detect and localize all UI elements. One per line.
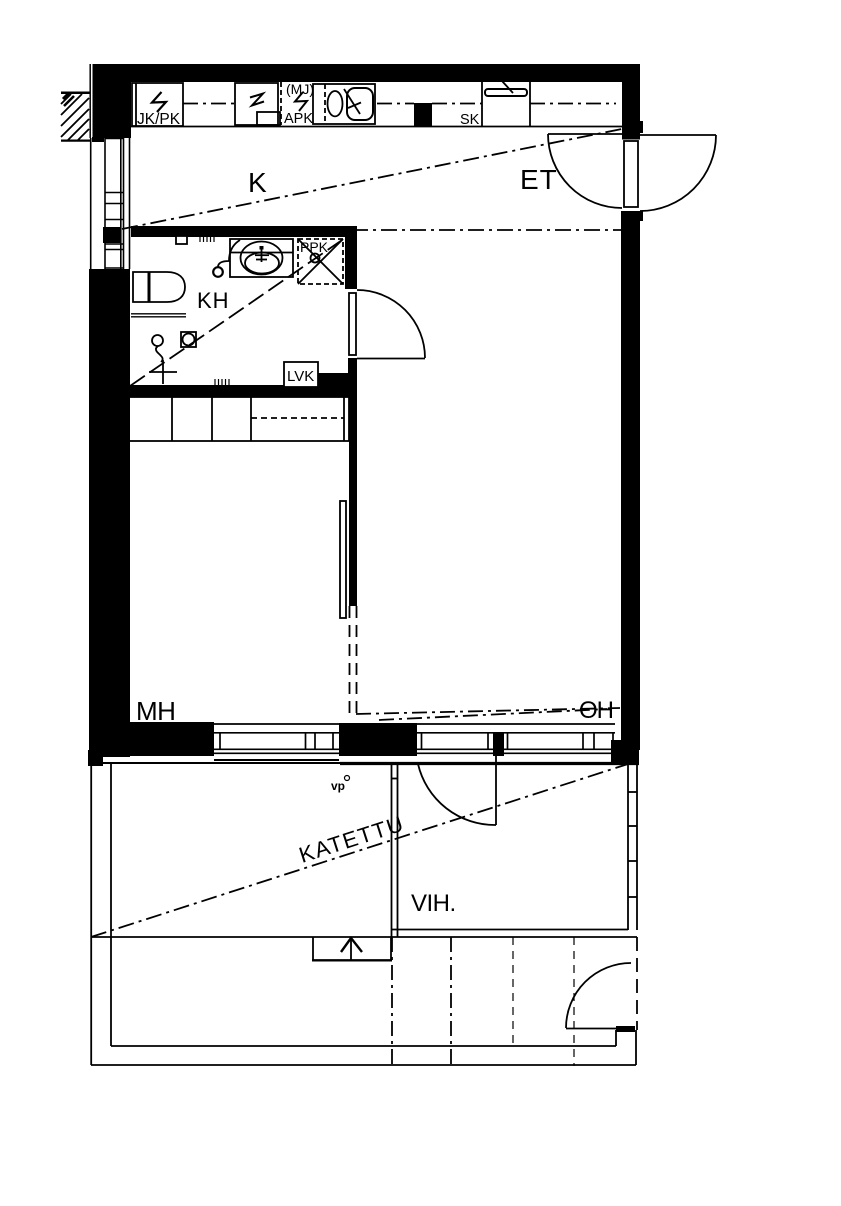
svg-text:PPK: PPK (300, 239, 329, 255)
svg-text:OH: OH (579, 697, 613, 724)
svg-text:LVK: LVK (287, 368, 314, 385)
svg-text:JK/PK: JK/PK (137, 111, 181, 128)
svg-text:MH: MH (136, 696, 175, 726)
svg-text:K: K (248, 167, 267, 198)
svg-text:vp: vp (331, 779, 345, 793)
svg-text:(MJ): (MJ) (286, 81, 314, 97)
svg-text:SK: SK (460, 112, 480, 128)
svg-text:KH: KH (197, 288, 230, 313)
svg-text:ET: ET (520, 164, 558, 195)
svg-text:APK: APK (284, 111, 313, 127)
svg-text:VIH.: VIH. (411, 890, 456, 917)
